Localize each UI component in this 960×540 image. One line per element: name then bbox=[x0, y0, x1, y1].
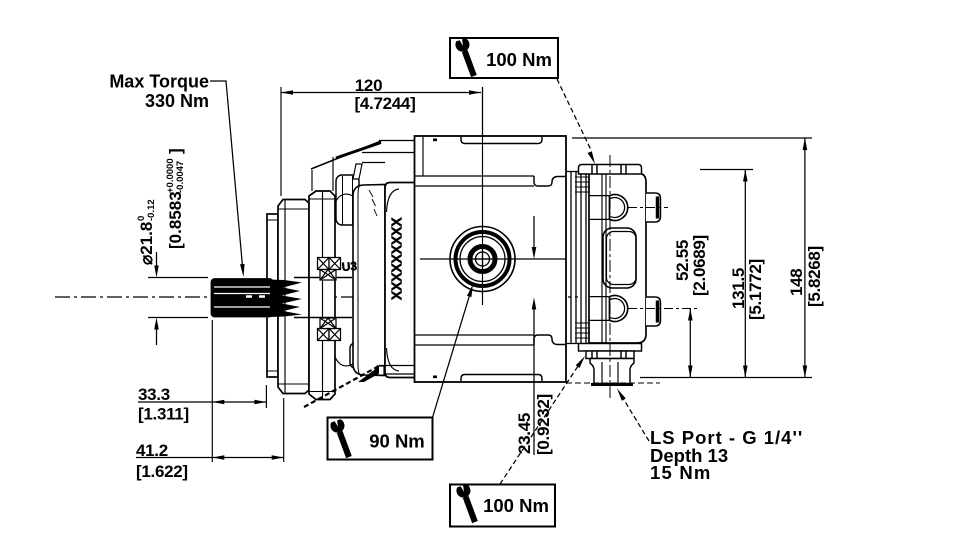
svg-text:148: 148 bbox=[787, 269, 806, 296]
svg-text:[0.8583: [0.8583 bbox=[166, 191, 185, 249]
svg-text:120: 120 bbox=[355, 76, 382, 95]
svg-text:-0.0047: -0.0047 bbox=[175, 161, 186, 193]
svg-text:[2.0689]: [2.0689] bbox=[690, 235, 709, 296]
svg-text:[5.1772]: [5.1772] bbox=[746, 259, 765, 320]
svg-text:[1.622]: [1.622] bbox=[136, 462, 188, 481]
svg-text:⌀21.8: ⌀21.8 bbox=[137, 222, 156, 265]
svg-text:]: ] bbox=[166, 148, 185, 154]
svg-text:XXXXXXXXX: XXXXXXXXX bbox=[390, 217, 406, 300]
svg-text:[4.7244]: [4.7244] bbox=[355, 94, 416, 113]
svg-text:U3: U3 bbox=[341, 259, 358, 274]
svg-text:15 Nm: 15 Nm bbox=[650, 462, 712, 483]
svg-text:Max Torque: Max Torque bbox=[109, 72, 209, 92]
svg-text:41.2: 41.2 bbox=[136, 441, 168, 460]
svg-text:100 Nm: 100 Nm bbox=[486, 49, 552, 70]
svg-text:33.3: 33.3 bbox=[138, 385, 170, 404]
svg-text:-0.12: -0.12 bbox=[146, 199, 157, 221]
svg-text:[5.8268]: [5.8268] bbox=[805, 246, 824, 307]
svg-text:90 Nm: 90 Nm bbox=[369, 431, 425, 452]
svg-text:[1.311]: [1.311] bbox=[138, 405, 189, 424]
svg-text:330 Nm: 330 Nm bbox=[145, 91, 209, 111]
svg-text:100 Nm: 100 Nm bbox=[483, 495, 549, 516]
svg-text:[0.9232]: [0.9232] bbox=[534, 394, 553, 455]
